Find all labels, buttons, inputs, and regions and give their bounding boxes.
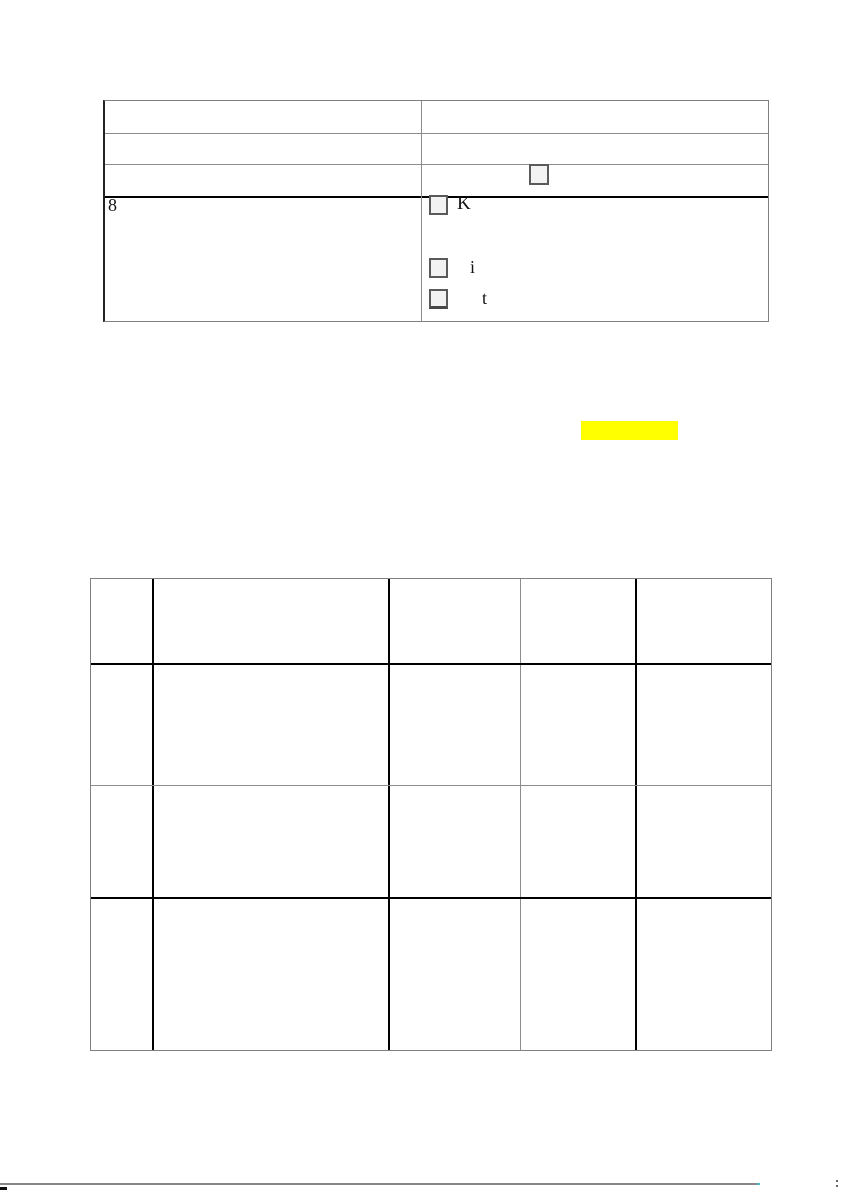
bottom-right-mark-lower [836,1185,838,1187]
row3-checkbox[interactable] [529,164,549,185]
grid-row2-divider [91,897,771,899]
option-i-checkbox[interactable] [429,258,448,278]
empty-grid-table [90,578,772,1051]
grid-col3-divider [520,579,521,1050]
option-k-checkbox[interactable] [429,195,448,215]
form-table-column-divider [421,101,422,321]
option-k-label: K [457,193,471,215]
grid-row1-divider [91,785,771,786]
highlighted-blank [581,421,678,440]
item-number: 8 [108,194,117,216]
option-t-label: t [482,287,487,309]
form-table-row2-divider [105,164,768,165]
page-bottom-rule [0,1183,759,1185]
bottom-left-mark [0,1187,7,1190]
bottom-right-mark-upper [836,1180,838,1182]
form-table-row1-divider [105,133,768,134]
grid-header-divider [91,663,771,665]
document-page: 8 K i t [0,0,841,1191]
option-t-checkbox[interactable] [429,289,448,309]
option-i-label: i [470,256,475,278]
grid-col4-divider [635,579,637,1050]
bottom-rule-tip-mark [757,1183,760,1185]
grid-col1-divider [152,579,154,1050]
grid-col2-divider [388,579,390,1050]
form-table: 8 K i t [103,100,769,322]
